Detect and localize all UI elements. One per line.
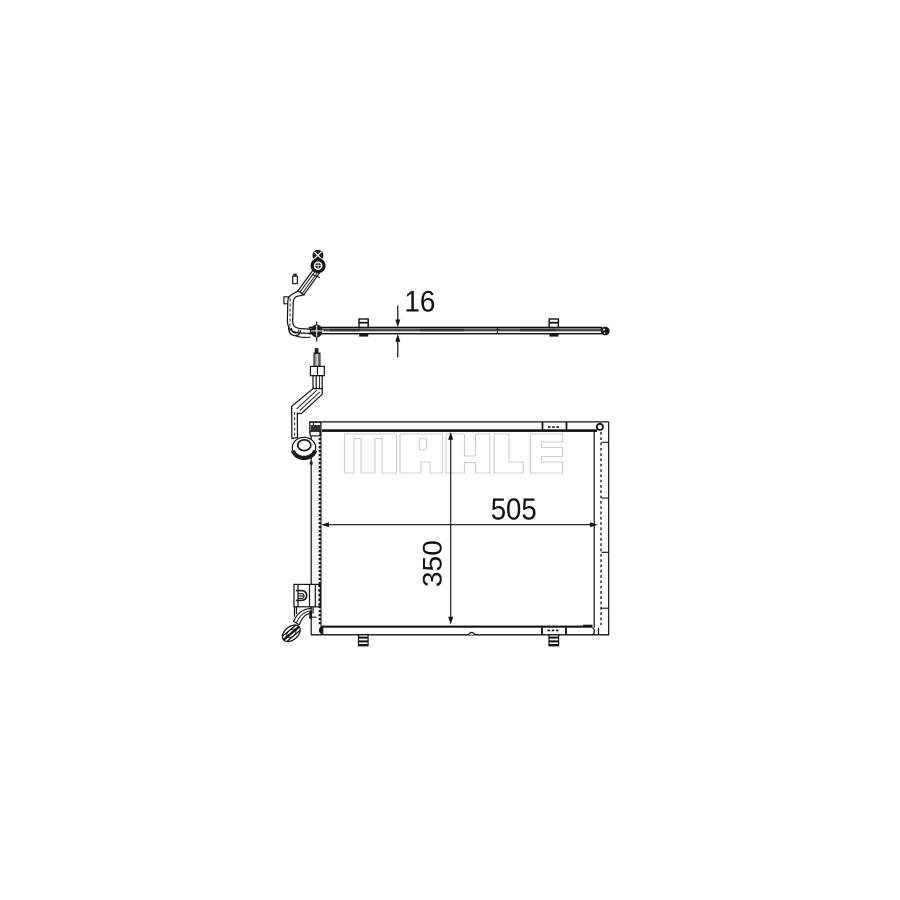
svg-text:505: 505: [491, 494, 537, 527]
svg-text:350: 350: [418, 540, 448, 587]
svg-text:16: 16: [404, 285, 435, 318]
